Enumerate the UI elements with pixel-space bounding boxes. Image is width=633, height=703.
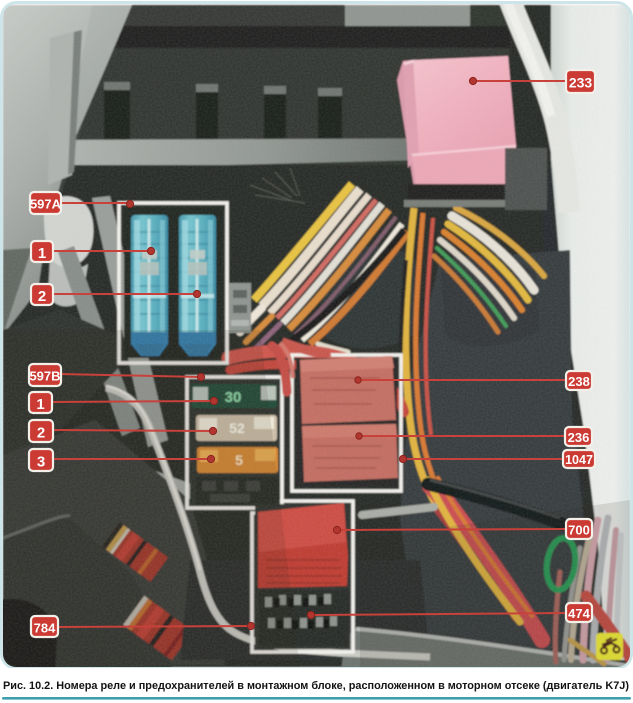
svg-text:3: 3 [37,454,45,471]
svg-text:233: 233 [569,75,593,91]
svg-text:597A: 597A [30,197,62,212]
svg-text:1: 1 [38,245,46,262]
svg-text:700: 700 [568,523,590,538]
svg-text:238: 238 [568,374,590,389]
svg-text:597B: 597B [29,369,60,384]
svg-text:1: 1 [36,396,44,413]
svg-text:1047: 1047 [565,453,593,467]
svg-text:236: 236 [568,430,590,445]
svg-text:784: 784 [34,621,56,636]
svg-text:2: 2 [38,288,46,305]
svg-text:Рис. 10.2. Номера реле и предо: Рис. 10.2. Номера реле и предохранителей… [3,680,629,692]
svg-text:2: 2 [37,425,45,442]
svg-text:474: 474 [568,606,590,621]
